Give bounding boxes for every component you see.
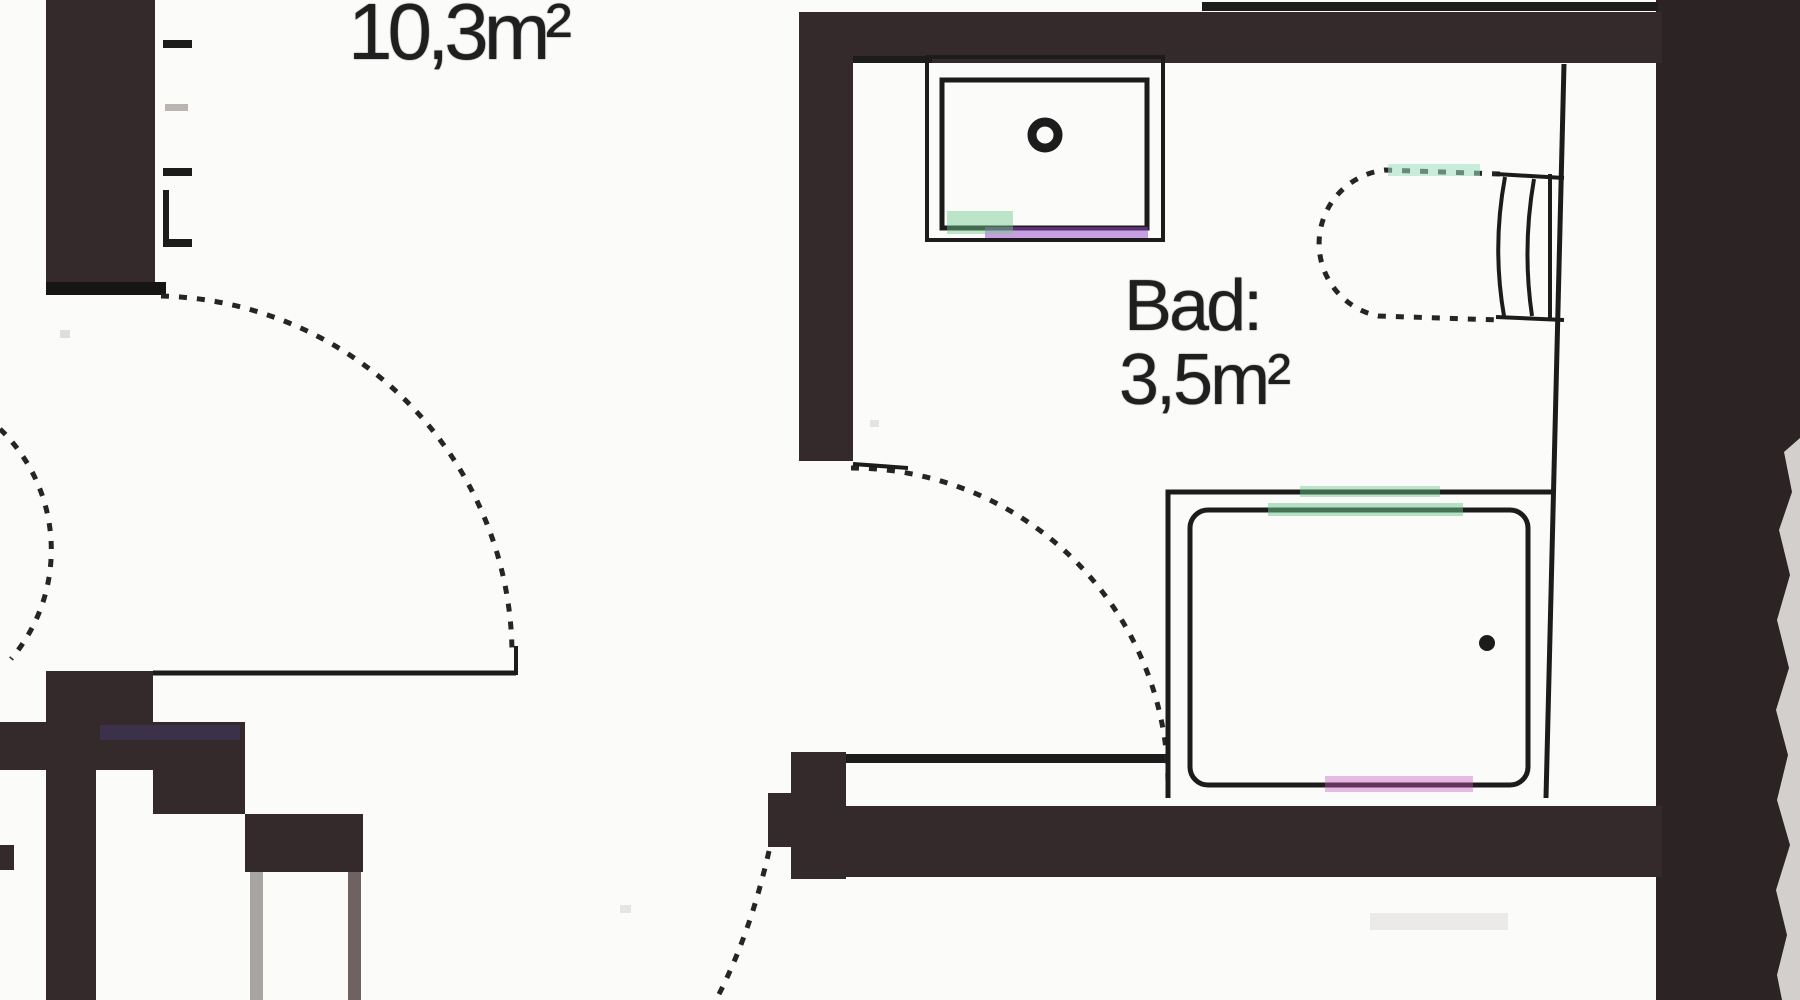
door-swing-arc-room bbox=[161, 296, 512, 650]
floorplan-drawing bbox=[0, 0, 1800, 1000]
tint-green-sink-corner bbox=[947, 211, 1013, 234]
smudge-gray bbox=[1370, 913, 1508, 930]
scan-edge-region bbox=[1656, 0, 1800, 1000]
faucet-icon bbox=[1032, 122, 1058, 148]
corridor-line-light bbox=[250, 872, 263, 1000]
tint-green-toilet-top bbox=[1388, 164, 1480, 176]
door-swing-arc-left-partial bbox=[0, 429, 51, 659]
wall-bottom-pier bbox=[791, 752, 846, 879]
ruler-ticks bbox=[163, 40, 192, 247]
wall-bathroom-left bbox=[799, 12, 853, 461]
wall-top-inner-line bbox=[853, 56, 932, 63]
tick-stem bbox=[163, 190, 169, 247]
tint-green-shower-top bbox=[1300, 486, 1440, 497]
tint-magenta-shower-bottom bbox=[1325, 776, 1473, 792]
shower bbox=[1168, 492, 1552, 798]
tick-mark bbox=[163, 40, 192, 48]
paper-speck bbox=[620, 905, 631, 913]
wall-left-mid bbox=[46, 671, 153, 727]
tick-mark bbox=[163, 168, 192, 176]
wall-end-cap bbox=[46, 282, 166, 295]
sink-basin-rect bbox=[942, 80, 1147, 228]
wall-left-lower-bar bbox=[46, 770, 96, 1000]
door-swing-arc-bathroom bbox=[851, 468, 1168, 785]
toilet bbox=[1319, 170, 1564, 320]
wall-left-pier bbox=[153, 727, 245, 814]
bathroom-area-label: 3,5m² bbox=[1119, 344, 1288, 416]
wall-top-thin-line bbox=[1202, 2, 1658, 11]
bathroom-door-threshold-line bbox=[846, 754, 1168, 763]
paper-speck bbox=[870, 420, 879, 427]
wall-bottom bbox=[846, 806, 1662, 877]
wall-left-upper bbox=[46, 0, 155, 284]
wall-left-nub bbox=[0, 845, 14, 870]
bathroom-door-stub bbox=[853, 464, 908, 468]
wall-bottom-nub bbox=[768, 793, 791, 847]
paper-speck bbox=[60, 330, 70, 338]
tint-green-shower-inner bbox=[1268, 503, 1463, 516]
shower-tray bbox=[1190, 510, 1528, 785]
door-swings bbox=[0, 296, 1168, 1000]
tint-blue-wall-band bbox=[100, 725, 240, 740]
toilet-bowl-outline bbox=[1319, 170, 1500, 320]
floorplan-scan: 10,3m² Bad: 3,5m² bbox=[0, 0, 1800, 1000]
tick-mark bbox=[163, 239, 192, 247]
tick-mark-faint bbox=[165, 104, 188, 111]
room-area-label: 10,3m² bbox=[348, 0, 567, 72]
toilet-cistern bbox=[1496, 174, 1564, 320]
corridor-line-dark bbox=[348, 872, 361, 1000]
drain-icon bbox=[1479, 635, 1495, 651]
walls bbox=[0, 0, 1662, 1000]
wall-left-block bbox=[245, 814, 363, 872]
bathroom-name-label: Bad: bbox=[1124, 270, 1260, 342]
door-swing-arc-hall bbox=[716, 851, 769, 1000]
